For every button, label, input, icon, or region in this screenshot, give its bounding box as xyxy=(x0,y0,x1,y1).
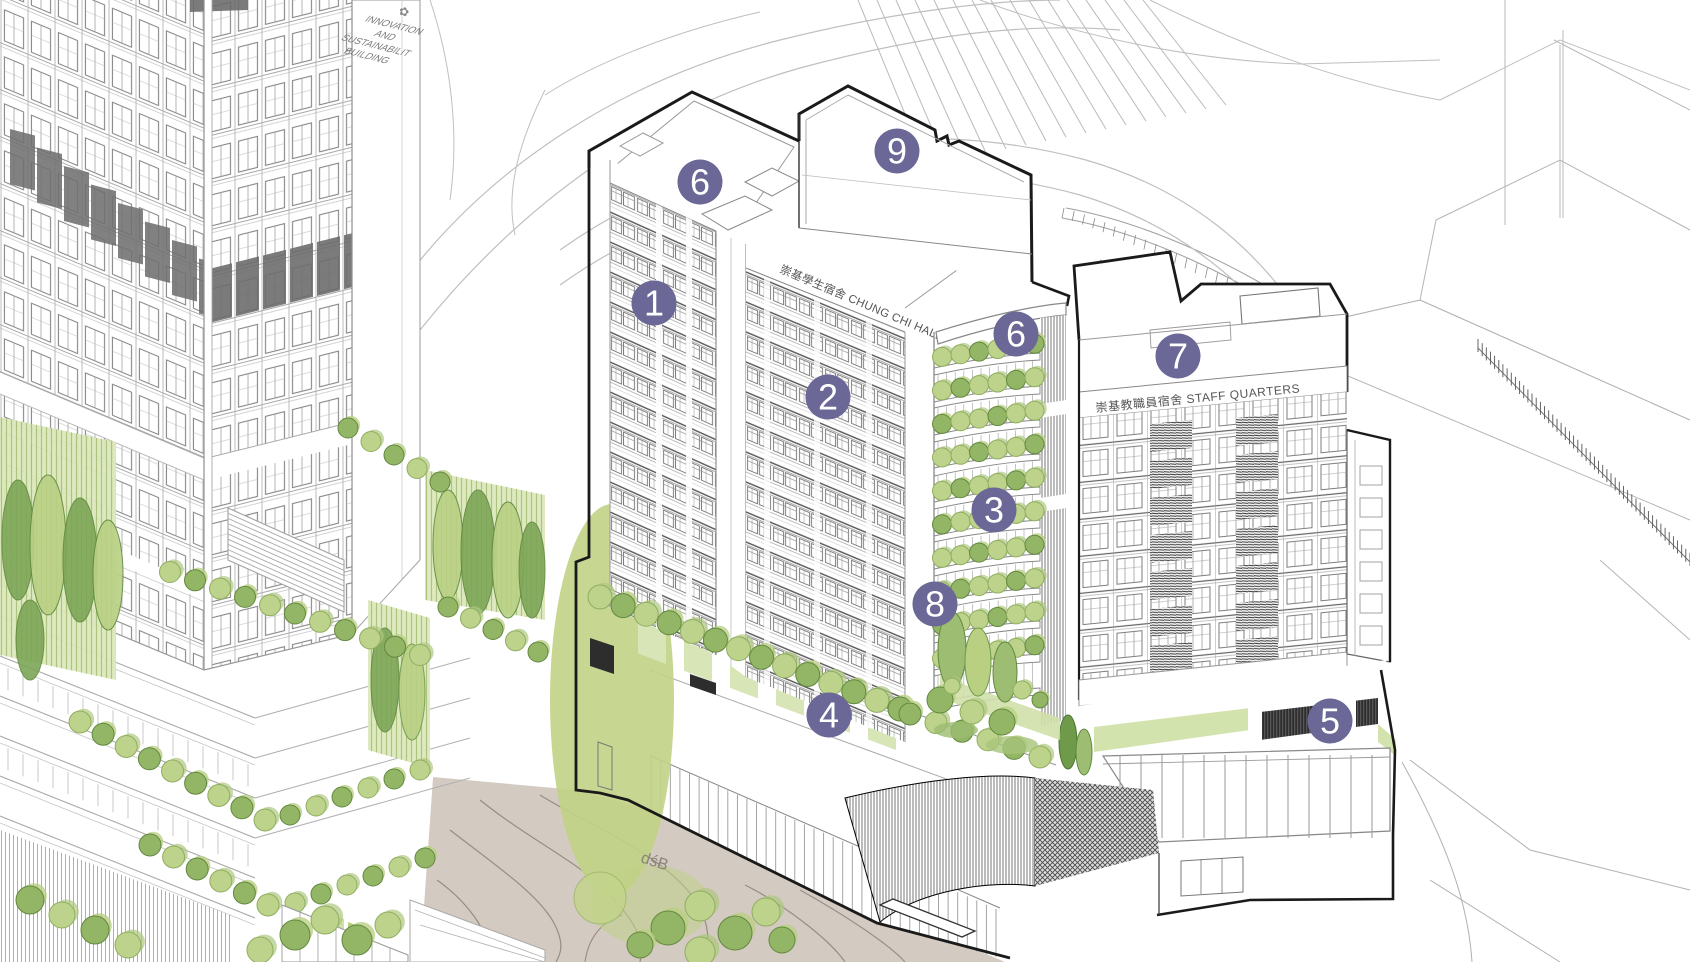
svg-text:6: 6 xyxy=(690,162,710,203)
svg-text:1: 1 xyxy=(644,283,664,324)
svg-text:6: 6 xyxy=(1006,314,1026,355)
svg-text:7: 7 xyxy=(1168,336,1188,377)
svg-text:2: 2 xyxy=(818,377,838,418)
svg-text:4: 4 xyxy=(819,695,839,736)
svg-text:5: 5 xyxy=(1320,701,1340,742)
svg-text:8: 8 xyxy=(925,584,945,625)
svg-text:3: 3 xyxy=(984,490,1004,531)
svg-text:9: 9 xyxy=(887,131,907,172)
